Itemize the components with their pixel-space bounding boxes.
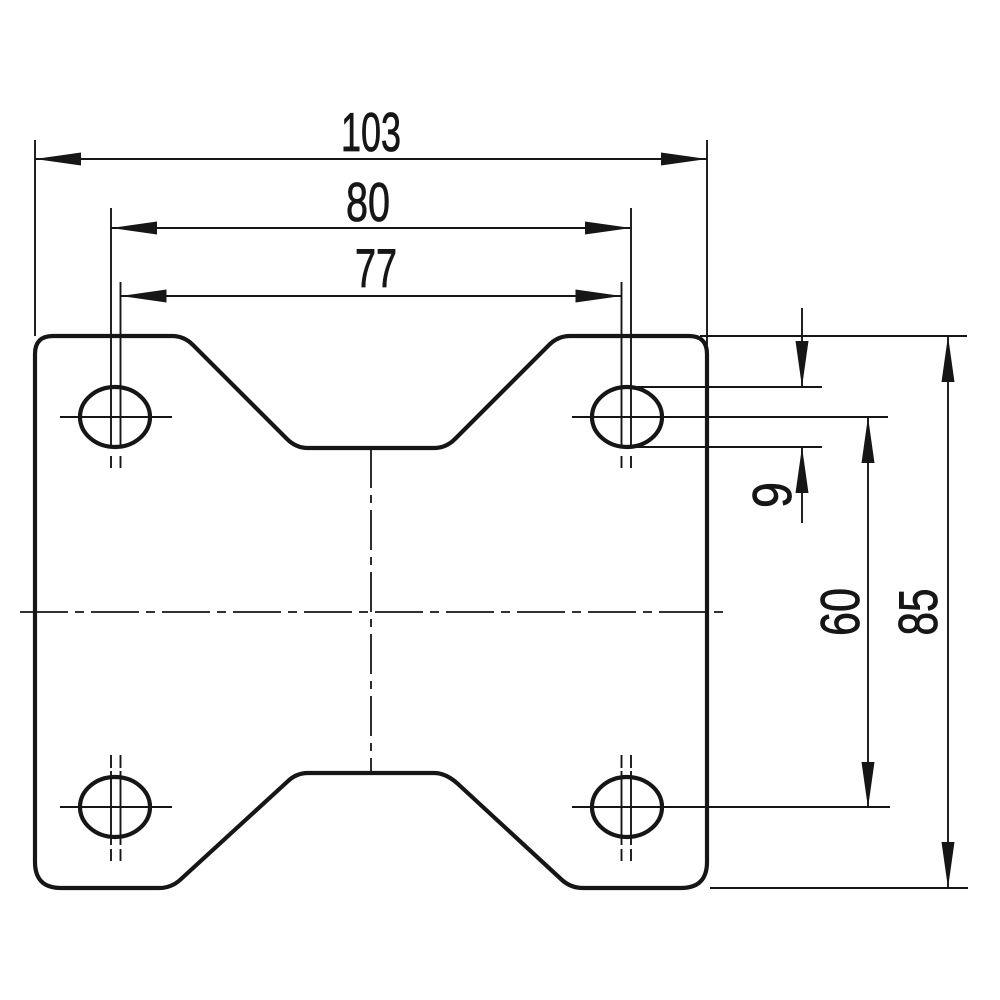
dim-outer-width: 103 xyxy=(35,101,707,166)
dim-label-9: 9 xyxy=(741,482,803,508)
dim-label-77: 77 xyxy=(355,237,397,299)
dim-hole-spacing-inner: 77 xyxy=(121,237,622,303)
caster-plate-drawing: 103 80 77 9 60 85 xyxy=(0,0,1000,1000)
dim-label-85: 85 xyxy=(887,589,949,636)
arrowhead-left xyxy=(35,153,81,166)
arrowhead-up xyxy=(862,417,875,463)
dim-label-80: 80 xyxy=(346,171,390,233)
arrowhead-right xyxy=(585,222,631,235)
arrowhead-left xyxy=(111,222,157,235)
arrowhead-right xyxy=(576,290,622,303)
technical-drawing-canvas: 103 80 77 9 60 85 xyxy=(0,0,1000,1000)
arrowhead-down xyxy=(862,762,875,808)
dim-hole-height: 9 xyxy=(741,308,809,523)
arrowhead-up xyxy=(942,336,955,382)
arrowhead-down xyxy=(796,341,809,387)
dim-hole-spacing-vertical: 60 xyxy=(809,417,875,808)
arrowhead-down xyxy=(942,842,955,888)
arrowhead-right xyxy=(661,153,707,166)
dim-label-60: 60 xyxy=(809,588,871,636)
arrowhead-left xyxy=(121,290,167,303)
dim-hole-spacing-outer: 80 xyxy=(111,171,631,235)
dim-label-103: 103 xyxy=(341,101,401,163)
dim-outer-height: 85 xyxy=(887,336,955,888)
